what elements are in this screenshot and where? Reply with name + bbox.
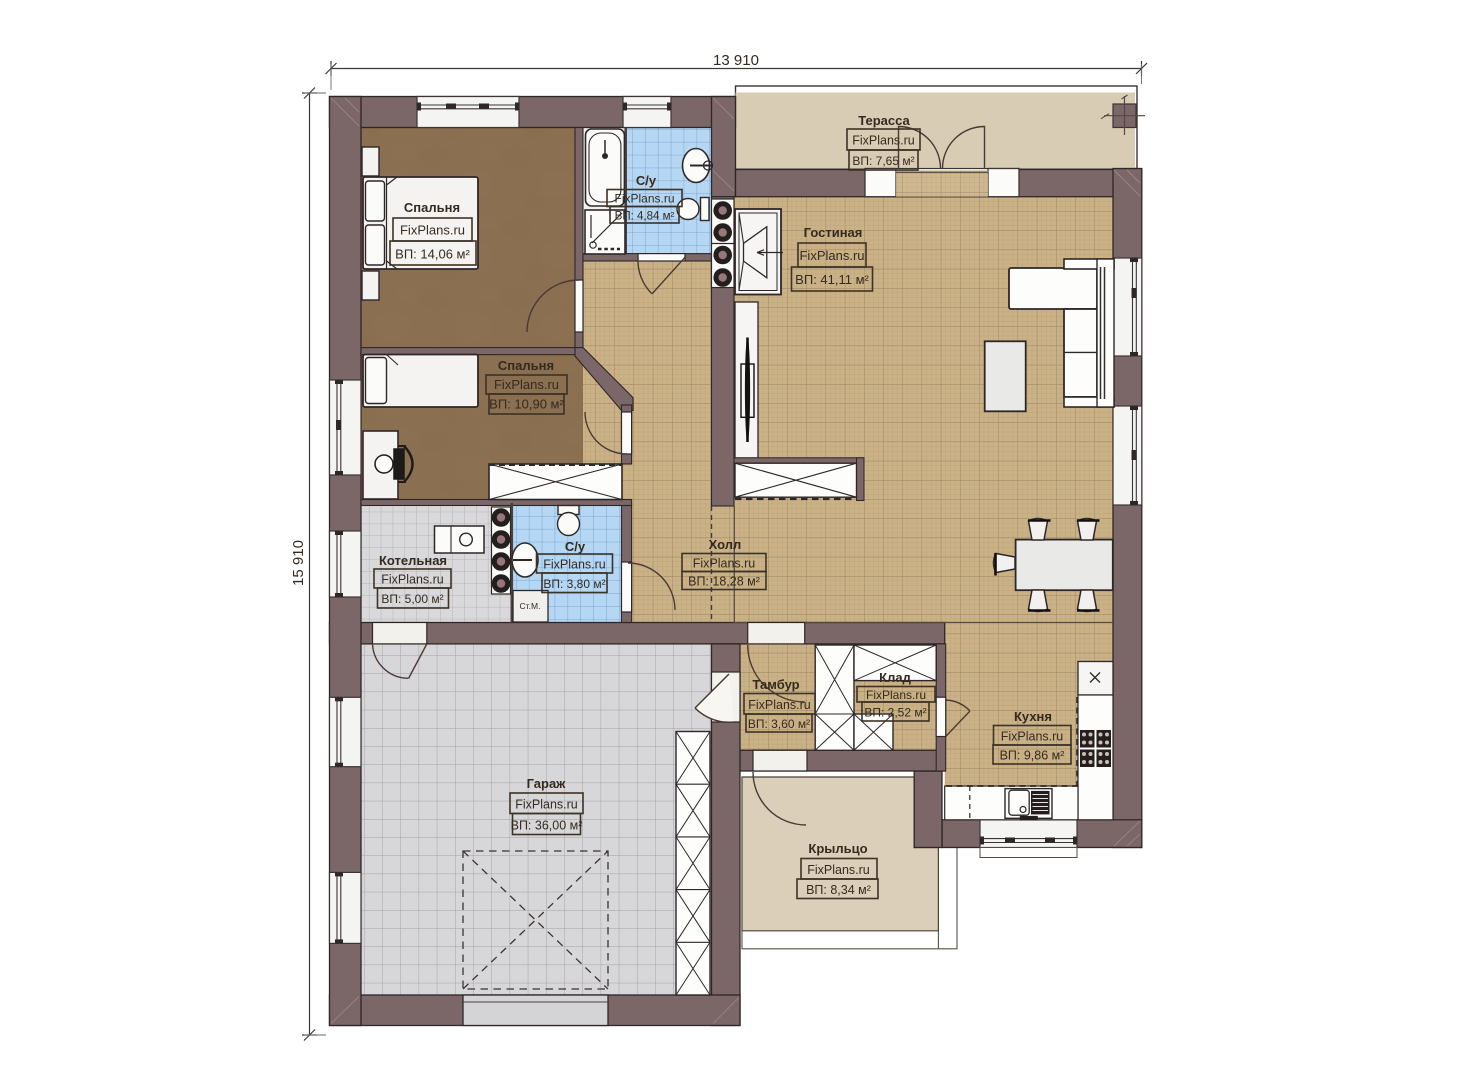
svg-text:15 910: 15 910 [290,540,307,586]
svg-text:ВП: 18,28 м²: ВП: 18,28 м² [688,575,760,589]
svg-text:ВП: 4,84 м²: ВП: 4,84 м² [615,211,675,223]
svg-text:FixPlans.ru: FixPlans.ru [799,248,864,263]
svg-text:FixPlans.ru: FixPlans.ru [543,558,606,572]
svg-text:ВП: 7,65 м²: ВП: 7,65 м² [852,154,914,168]
svg-text:Холл: Холл [709,537,742,552]
svg-text:FixPlans.ru: FixPlans.ru [614,192,674,206]
svg-text:FixPlans.ru: FixPlans.ru [807,863,870,877]
svg-text:FixPlans.ru: FixPlans.ru [400,223,465,238]
svg-text:FixPlans.ru: FixPlans.ru [515,798,578,812]
svg-text:ВП: 5,00 м²: ВП: 5,00 м² [381,592,443,606]
svg-text:FixPlans.ru: FixPlans.ru [693,557,756,571]
svg-text:Кухня: Кухня [1014,709,1052,724]
svg-text:Ст.М.: Ст.М. [520,601,541,611]
svg-text:ВП: 3,80 м²: ВП: 3,80 м² [543,577,605,591]
svg-text:С/у: С/у [636,173,657,188]
svg-text:ВП: 8,34 м²: ВП: 8,34 м² [806,883,871,897]
svg-text:FixPlans.ru: FixPlans.ru [1001,730,1064,744]
svg-text:FixPlans.ru: FixPlans.ru [748,698,811,712]
svg-text:ВП: 41,11 м²: ВП: 41,11 м² [795,272,869,287]
svg-text:Гостиная: Гостиная [804,225,863,240]
svg-text:Спальня: Спальня [498,358,554,373]
svg-text:ВП: 9,86 м²: ВП: 9,86 м² [1000,749,1065,763]
svg-text:ВП: 10,90 м²: ВП: 10,90 м² [489,397,564,412]
svg-text:FixPlans.ru: FixPlans.ru [381,573,444,587]
svg-text:ВП: 14,06 м²: ВП: 14,06 м² [395,247,470,262]
svg-text:Клад: Клад [879,670,911,685]
svg-text:FixPlans.ru: FixPlans.ru [852,134,915,148]
svg-text:13 910: 13 910 [713,52,759,69]
svg-text:Крыльцо: Крыльцо [808,841,867,856]
svg-text:FixPlans.ru: FixPlans.ru [866,688,926,702]
svg-text:Спальня: Спальня [404,200,460,215]
svg-text:ВП: 36,00 м²: ВП: 36,00 м² [511,819,583,833]
svg-text:С/у: С/у [565,539,586,554]
svg-text:Гараж: Гараж [527,776,567,791]
svg-text:Котельная: Котельная [379,553,447,568]
svg-text:FixPlans.ru: FixPlans.ru [494,377,559,392]
svg-text:Терасса: Терасса [858,113,910,128]
svg-text:Тамбур: Тамбур [752,677,799,692]
svg-text:ВП: 2,52 м²: ВП: 2,52 м² [864,706,926,720]
svg-text:ВП: 3,60 м²: ВП: 3,60 м² [748,717,810,731]
